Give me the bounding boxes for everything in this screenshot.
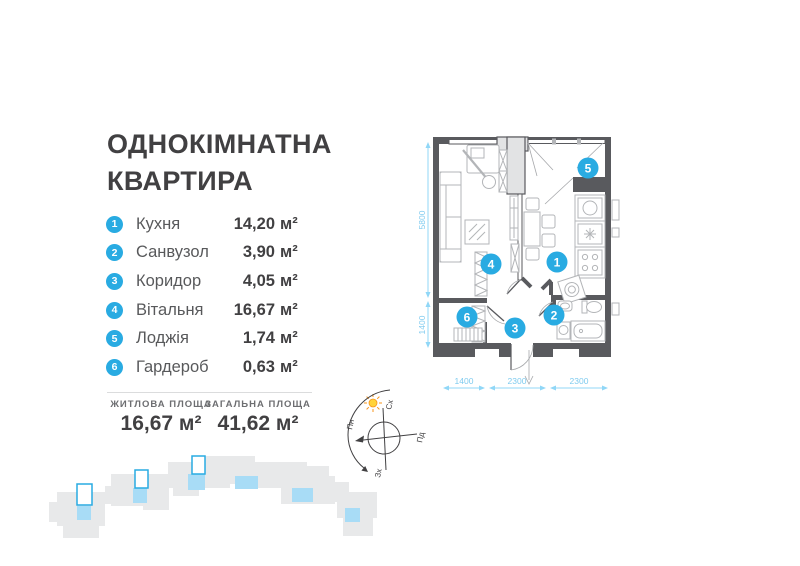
highlighted-unit[interactable]: [292, 488, 313, 502]
facade-elements: [612, 200, 619, 315]
room-row-loggia: 5 Лоджія 1,74м²: [106, 324, 304, 353]
plan-badge-livingroom: 4: [481, 254, 502, 275]
dim-width-3: 2300: [570, 376, 589, 386]
room-area-unit: м²: [280, 301, 304, 320]
living-area-label: ЖИТЛОВА ПЛОЩА: [106, 399, 216, 410]
room-area-value: 4,05: [228, 272, 275, 291]
highlighted-unit[interactable]: [188, 474, 205, 490]
room-area-value: 3,90: [228, 243, 275, 262]
room-row-wardrobe: 6 Гардероб 0,63м²: [106, 353, 304, 382]
highlighted-unit[interactable]: [133, 488, 147, 503]
compass-north-label: Пн: [345, 419, 356, 431]
room-area-unit: м²: [280, 243, 304, 262]
dim-width-1: 1400: [455, 376, 474, 386]
room-name: Кухня: [136, 215, 180, 234]
page-title: ОДНОКІМНАТНА КВАРТИРА: [107, 126, 332, 200]
dim-width-2: 2300: [508, 376, 527, 386]
summary-divider: [107, 392, 312, 393]
building-site-plan: [45, 450, 380, 545]
total-area-label: ЗАГАЛЬНА ПЛОЩА: [203, 399, 313, 410]
room-name: Санвузол: [136, 243, 209, 262]
room-name: Коридор: [136, 272, 201, 291]
living-area-value: 16,67 м²: [106, 412, 216, 436]
room-area-value: 14,20: [228, 215, 275, 234]
sun-icon: [364, 394, 382, 412]
compass-south-label: Пд: [415, 431, 426, 443]
svg-text:5: 5: [585, 161, 592, 175]
title-line-1: ОДНОКІМНАТНА: [107, 126, 332, 163]
selected-unit[interactable]: [135, 470, 148, 488]
total-area-summary: ЗАГАЛЬНА ПЛОЩА 41,62 м²: [203, 399, 313, 436]
highlighted-unit[interactable]: [77, 506, 91, 520]
room-area-unit: м²: [280, 272, 304, 291]
room-number-badge: 1: [106, 216, 123, 233]
compass-east-label: Сх: [384, 399, 395, 410]
room-name: Лоджія: [136, 329, 189, 348]
kitchen-furniture: [524, 195, 605, 304]
svg-text:4: 4: [488, 257, 495, 271]
room-row-bathroom: 2 Санвузол 3,90м²: [106, 239, 304, 268]
selected-unit[interactable]: [77, 484, 92, 505]
plan-badge-bathroom: 2: [544, 305, 565, 326]
highlighted-unit[interactable]: [345, 508, 360, 522]
room-row-corridor: 3 Коридор 4,05м²: [106, 267, 304, 296]
room-row-kitchen: 1 Кухня 14,20м²: [106, 210, 304, 239]
total-area-value: 41,62 м²: [203, 412, 313, 436]
bathroom-furniture: [557, 301, 605, 341]
room-number-badge: 6: [106, 359, 123, 376]
plan-badge-wardrobe: 6: [457, 307, 478, 328]
svg-text:1: 1: [554, 255, 561, 269]
room-area-unit: м²: [280, 215, 304, 234]
room-area-value: 0,63: [228, 358, 275, 377]
dim-height-lower: 1400: [417, 315, 427, 334]
svg-text:3: 3: [512, 321, 519, 335]
floor-plan: 5800 1400 1400 2300 2300 4: [425, 120, 625, 400]
svg-text:6: 6: [464, 310, 471, 324]
dim-height-main: 5800: [417, 210, 427, 229]
selected-unit[interactable]: [192, 456, 205, 474]
room-number-badge: 2: [106, 244, 123, 261]
room-number-badge: 5: [106, 330, 123, 347]
apartment-card: ОДНОКІМНАТНА КВАРТИРА 1 Кухня 14,20м² 2 …: [0, 0, 800, 566]
plan-badge-corridor: 3: [505, 318, 526, 339]
room-row-livingroom: 4 Вітальня 16,67м²: [106, 296, 304, 325]
room-number-badge: 4: [106, 302, 123, 319]
room-area-unit: м²: [280, 329, 304, 348]
room-name: Вітальня: [136, 301, 204, 320]
highlighted-unit[interactable]: [235, 476, 258, 489]
room-area-unit: м²: [280, 358, 304, 377]
north-arrowhead: [355, 436, 364, 443]
livingroom-furniture: [440, 145, 519, 296]
room-area-value: 16,67: [228, 301, 275, 320]
site-plan-blocks: [49, 456, 377, 538]
living-area-summary: ЖИТЛОВА ПЛОЩА 16,67 м²: [106, 399, 216, 436]
title-line-2: КВАРТИРА: [107, 163, 332, 200]
room-name: Гардероб: [136, 358, 209, 377]
svg-text:2: 2: [551, 308, 558, 322]
plan-badge-kitchen: 1: [547, 252, 568, 273]
plan-badge-loggia: 5: [578, 158, 599, 179]
room-number-badge: 3: [106, 273, 123, 290]
room-area-value: 1,74: [228, 329, 275, 348]
room-legend: 1 Кухня 14,20м² 2 Санвузол 3,90м² 3 Кори…: [106, 210, 304, 382]
